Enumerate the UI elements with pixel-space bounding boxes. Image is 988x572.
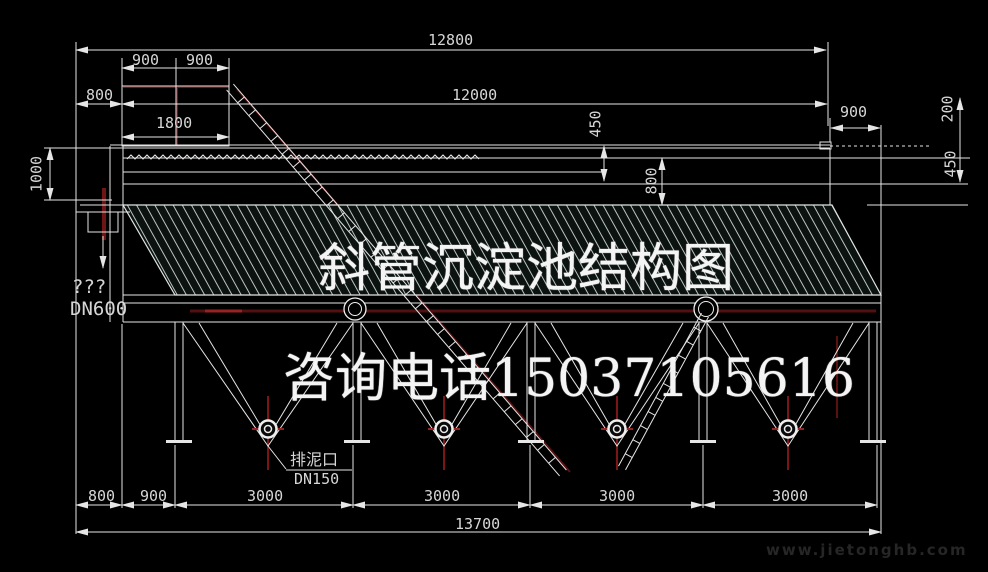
dim-inner-top: 12000: [452, 88, 497, 103]
collection-pipe-circles: [344, 297, 718, 321]
dim-platform-width: 1800: [156, 116, 192, 131]
dim-bottom-seg-1: 900: [140, 489, 167, 504]
dim-overall-top: 12800: [428, 33, 473, 48]
dim-overall-bottom: 13700: [455, 517, 500, 532]
cad-drawing-canvas: 12800 12000 800 900 900 1800 1000 450 80…: [0, 0, 988, 572]
watermark-site: www.jietonghb.com: [766, 541, 968, 559]
dim-bottom-seg-0: 800: [88, 489, 115, 504]
dim-left-depth: 1000: [30, 156, 45, 192]
dim-bottom-seg-4: 3000: [599, 489, 635, 504]
dim-mid-tube: 800: [645, 167, 660, 194]
dim-bottom-seg-3: 3000: [424, 489, 460, 504]
dim-right-trough: 450: [944, 150, 959, 177]
dim-bottom-seg-5: 3000: [772, 489, 808, 504]
column-footings: [166, 440, 886, 443]
dim-platform-right: 900: [186, 53, 213, 68]
dim-bottom-seg-2: 3000: [247, 489, 283, 504]
inlet-pipe-label: DN600: [70, 300, 127, 319]
dim-mid-rim: 450: [589, 110, 604, 137]
drawing-title: 斜管沉淀池结构图: [318, 243, 734, 295]
dim-right-freeboard: 200: [941, 95, 956, 122]
drain-size-label: DN150: [294, 472, 339, 487]
drain-name-label: 排泥口: [290, 452, 338, 468]
watermark-phone: 咨询电话15037105616: [283, 353, 855, 405]
inlet-unknown-label: ???: [72, 278, 106, 297]
dim-platform-offset: 800: [86, 88, 113, 103]
dim-right-offset: 900: [840, 105, 867, 120]
dim-platform-left: 900: [132, 53, 159, 68]
